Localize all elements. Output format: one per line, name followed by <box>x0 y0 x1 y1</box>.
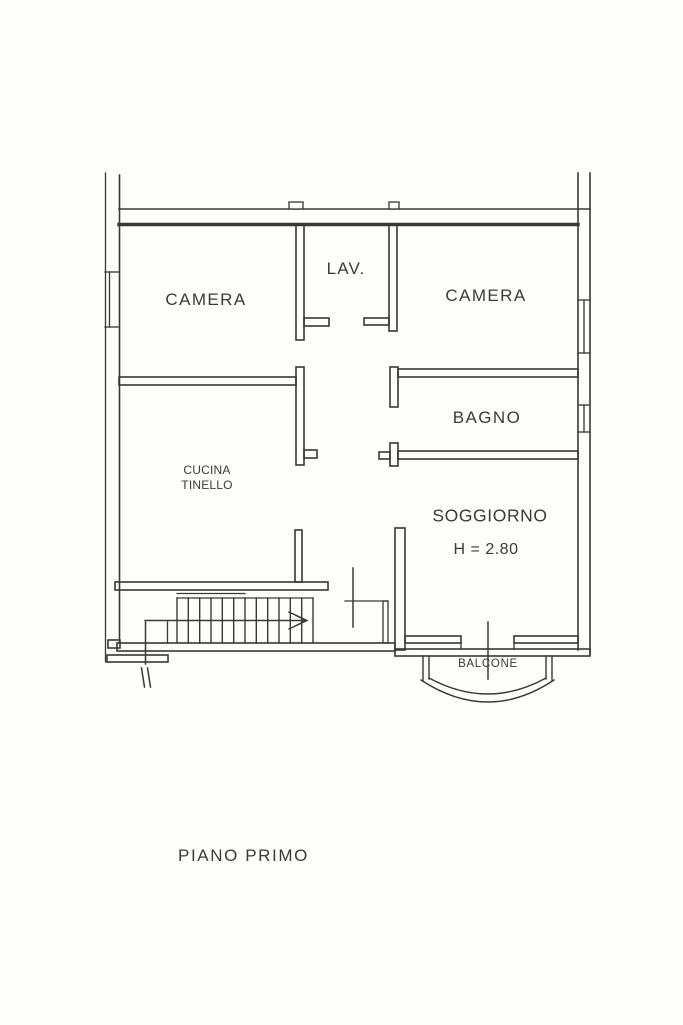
bagno-bottom-door-jamb <box>390 443 398 466</box>
lav-left-wall <box>296 224 304 340</box>
stair-hall-bottom-wall <box>117 643 395 651</box>
floor-plan: CAMERA LAV. CAMERA BAGNO CUCINA TINELLO … <box>0 0 683 1025</box>
room-label-bagno: BAGNO <box>453 408 521 428</box>
balcony-arc-inner <box>429 678 546 694</box>
room-label-camera-right: CAMERA <box>445 286 526 306</box>
room-label-cucina-tinello: CUCINA TINELLO <box>181 463 232 493</box>
corridor-jamb-tick <box>379 452 390 459</box>
chimney-notch-right <box>389 202 399 209</box>
entry-wall-step <box>108 640 120 648</box>
lav-right-door-jamb <box>364 318 389 325</box>
floor-title: PIANO PRIMO <box>178 846 309 866</box>
room-label-cucina-line2: TINELLO <box>181 478 232 493</box>
chimney-notch-left <box>289 202 303 209</box>
room-label-soggiorno: SOGGIORNO <box>432 506 547 527</box>
staircase <box>145 594 388 644</box>
bagno-top-wall <box>398 369 578 377</box>
ceiling-height-label: H = 2.80 <box>454 541 519 559</box>
lav-right-wall <box>389 224 397 331</box>
window-icon-camera-left <box>105 272 119 327</box>
room-label-camera-left: CAMERA <box>165 290 246 310</box>
cucina-door-jamb <box>304 450 317 458</box>
soggiorno-left-wall <box>395 528 405 650</box>
corridor-left-lower-wall <box>295 530 302 582</box>
soggiorno-bottom-wall-left <box>405 636 461 643</box>
window-icon-bagno <box>578 405 590 432</box>
stair-arrow-icon <box>145 612 307 629</box>
lav-left-door-jamb <box>304 318 329 326</box>
cucina-bottom-wall <box>115 582 328 590</box>
room-label-balcone: BALCONE <box>458 658 518 670</box>
bagno-top-door-jamb <box>390 367 398 407</box>
soggiorno-bottom-wall-right <box>514 636 578 643</box>
window-icon-camera-right <box>578 300 590 353</box>
camera-left-bottom-wall <box>119 377 296 385</box>
entry-bottom-wall <box>107 655 168 662</box>
room-label-lav: LAV. <box>327 259 366 279</box>
soggiorno-bottom-outer-wall <box>395 649 590 656</box>
floor-plan-drawing <box>0 0 683 1025</box>
stair-upper-landing-side <box>383 601 388 643</box>
room-label-cucina-line1: CUCINA <box>181 463 232 478</box>
door-symbols <box>142 568 489 687</box>
bagno-bottom-wall <box>398 451 578 459</box>
cucina-right-wall <box>296 367 304 465</box>
